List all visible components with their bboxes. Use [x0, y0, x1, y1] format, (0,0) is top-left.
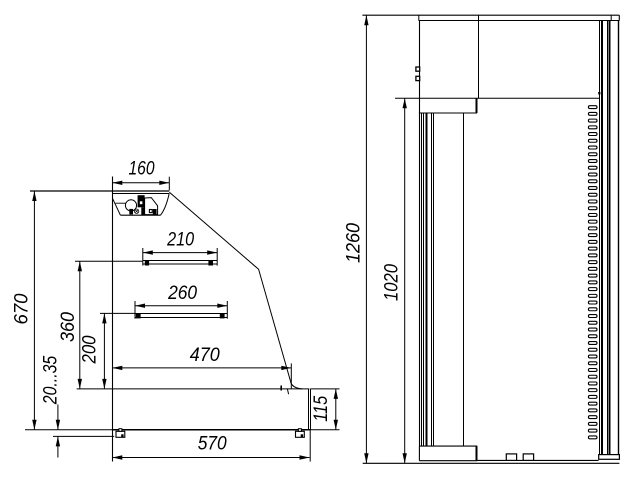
- svg-text:160: 160: [129, 157, 155, 179]
- svg-text:570: 570: [198, 433, 227, 455]
- svg-text:1260: 1260: [342, 223, 364, 263]
- svg-text:200: 200: [79, 335, 101, 364]
- svg-text:470: 470: [190, 344, 220, 366]
- svg-text:210: 210: [166, 228, 194, 250]
- svg-text:670: 670: [11, 293, 33, 324]
- svg-text:20...35: 20...35: [40, 356, 62, 405]
- svg-text:1020: 1020: [380, 264, 402, 301]
- svg-text:260: 260: [167, 282, 197, 304]
- svg-text:360: 360: [57, 312, 79, 342]
- svg-text:115: 115: [310, 396, 332, 422]
